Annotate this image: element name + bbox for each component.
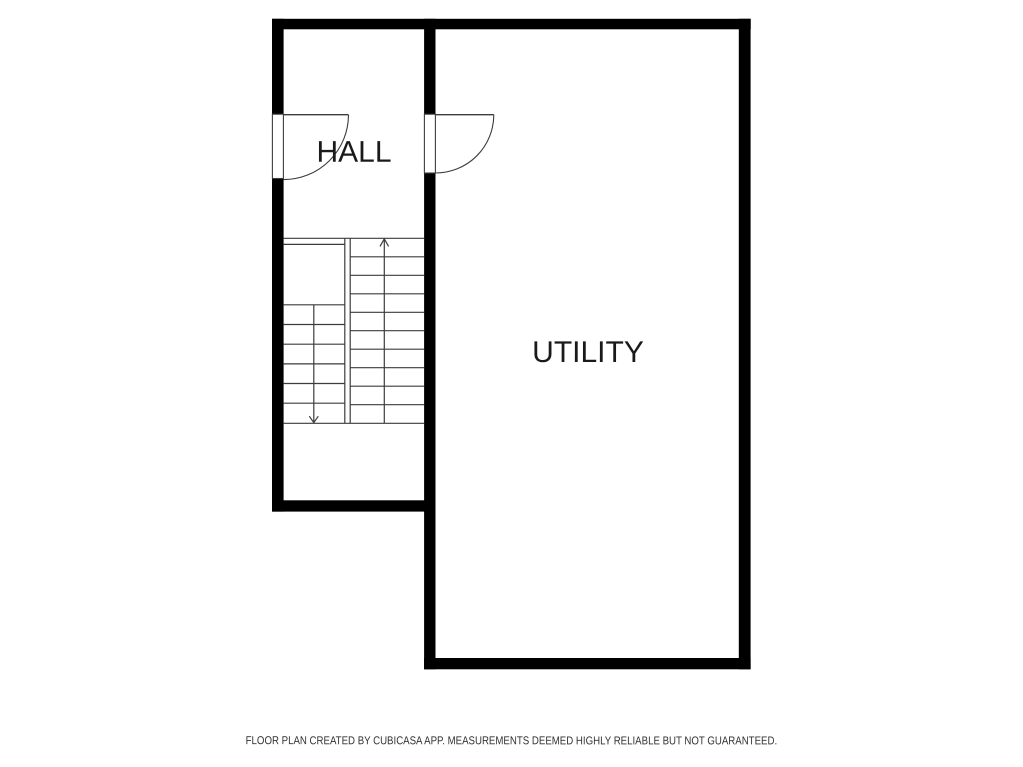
svg-text:UTILITY: UTILITY bbox=[532, 336, 644, 369]
svg-text:FLOOR PLAN CREATED BY CUBICASA: FLOOR PLAN CREATED BY CUBICASA APP. MEAS… bbox=[246, 735, 778, 747]
svg-text:HALL: HALL bbox=[316, 136, 391, 169]
